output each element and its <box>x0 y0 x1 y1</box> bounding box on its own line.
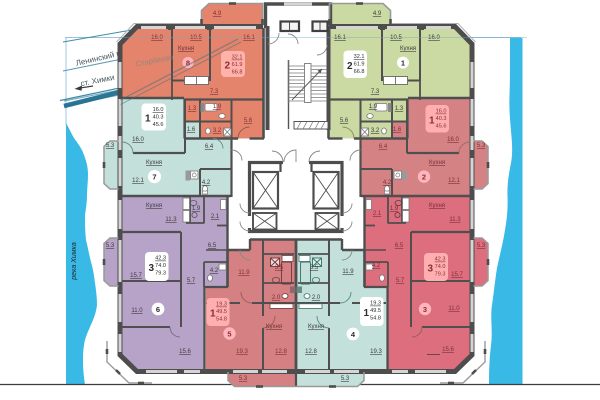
svg-text:5.3: 5.3 <box>341 376 350 382</box>
svg-text:5.7: 5.7 <box>187 278 196 284</box>
svg-text:16.0: 16.0 <box>153 107 164 113</box>
svg-text:16.0: 16.0 <box>447 137 459 143</box>
svg-text:1: 1 <box>429 115 435 126</box>
svg-text:49.5: 49.5 <box>370 308 381 314</box>
svg-text:Кухня: Кухня <box>266 324 282 330</box>
svg-text:4.2: 4.2 <box>372 263 381 269</box>
svg-text:42.3: 42.3 <box>155 256 166 262</box>
svg-text:11.0: 11.0 <box>448 306 460 312</box>
svg-text:12.1: 12.1 <box>448 178 460 184</box>
svg-text:7: 7 <box>152 173 156 182</box>
svg-text:5.3: 5.3 <box>106 143 115 149</box>
svg-text:6.5: 6.5 <box>395 243 404 249</box>
svg-text:19.3: 19.3 <box>370 301 381 307</box>
svg-text:1.9: 1.9 <box>390 206 399 212</box>
svg-text:1: 1 <box>210 309 216 320</box>
svg-text:3.2: 3.2 <box>213 128 222 134</box>
svg-text:7.3: 7.3 <box>371 89 380 95</box>
svg-text:2.1: 2.1 <box>211 214 220 220</box>
svg-text:2.0: 2.0 <box>272 295 281 301</box>
svg-text:1.9: 1.9 <box>369 104 378 110</box>
svg-text:42.3: 42.3 <box>435 257 446 263</box>
svg-text:61.9: 61.9 <box>354 62 365 68</box>
svg-text:1: 1 <box>401 58 405 67</box>
svg-text:15.7: 15.7 <box>451 272 463 278</box>
svg-text:2: 2 <box>225 61 231 72</box>
svg-text:16.0: 16.0 <box>132 137 144 143</box>
svg-text:61.9: 61.9 <box>232 62 243 68</box>
svg-text:Кухня: Кухня <box>146 203 162 209</box>
svg-text:4.2: 4.2 <box>383 180 392 186</box>
svg-text:74.0: 74.0 <box>435 264 446 270</box>
svg-text:45.6: 45.6 <box>436 123 447 129</box>
svg-text:49.5: 49.5 <box>216 309 227 315</box>
svg-text:12.1: 12.1 <box>132 178 144 184</box>
svg-text:40.3: 40.3 <box>436 116 447 122</box>
svg-text:16.0: 16.0 <box>436 109 447 115</box>
svg-text:5.6: 5.6 <box>244 118 253 124</box>
svg-text:6: 6 <box>156 305 160 314</box>
svg-text:66.8: 66.8 <box>232 69 243 75</box>
svg-text:19.3: 19.3 <box>236 349 248 355</box>
svg-text:12.8: 12.8 <box>275 349 287 355</box>
svg-text:10.5: 10.5 <box>390 35 402 41</box>
svg-text:5.3: 5.3 <box>477 143 486 149</box>
svg-text:16.1: 16.1 <box>243 35 255 41</box>
svg-text:11.0: 11.0 <box>131 308 143 314</box>
svg-text:5.7: 5.7 <box>396 278 405 284</box>
svg-text:1.3: 1.3 <box>188 106 197 112</box>
svg-text:1.6: 1.6 <box>393 127 402 133</box>
svg-text:4.9: 4.9 <box>213 11 222 17</box>
svg-text:5.3: 5.3 <box>106 243 115 249</box>
svg-text:6.5: 6.5 <box>208 243 217 249</box>
svg-text:15.7: 15.7 <box>130 273 142 279</box>
svg-text:1.9: 1.9 <box>192 206 201 212</box>
svg-text:54.8: 54.8 <box>216 316 227 322</box>
svg-text:10.5: 10.5 <box>190 35 202 41</box>
svg-text:Кухня: Кухня <box>146 160 162 166</box>
svg-text:12.8: 12.8 <box>305 349 317 355</box>
svg-text:1.6: 1.6 <box>187 127 196 133</box>
svg-text:3: 3 <box>149 263 155 274</box>
svg-text:19.3: 19.3 <box>370 349 382 355</box>
svg-text:2: 2 <box>347 61 353 72</box>
svg-text:Кухня: Кухня <box>400 46 416 52</box>
svg-text:40.3: 40.3 <box>153 115 164 121</box>
svg-text:32.1: 32.1 <box>232 55 243 61</box>
svg-text:1: 1 <box>364 308 370 319</box>
svg-text:3.5: 3.5 <box>310 265 319 271</box>
svg-text:река Химка: река Химка <box>71 242 78 281</box>
svg-text:79.3: 79.3 <box>435 271 446 277</box>
svg-text:74.0: 74.0 <box>155 263 166 269</box>
svg-text:79.3: 79.3 <box>155 270 166 276</box>
svg-text:3.2: 3.2 <box>371 128 380 134</box>
svg-text:5: 5 <box>227 329 231 338</box>
svg-text:4.2: 4.2 <box>210 268 219 274</box>
svg-text:3: 3 <box>423 305 427 314</box>
svg-text:5.6: 5.6 <box>340 118 349 124</box>
svg-text:5.3: 5.3 <box>239 376 248 382</box>
svg-text:3: 3 <box>428 264 434 275</box>
svg-text:15.6: 15.6 <box>442 347 454 353</box>
svg-text:Кухня: Кухня <box>429 160 445 166</box>
svg-text:16.0: 16.0 <box>151 35 163 41</box>
svg-text:66.8: 66.8 <box>354 69 365 75</box>
svg-text:15.6: 15.6 <box>179 349 191 355</box>
svg-text:11.3: 11.3 <box>449 217 461 223</box>
svg-text:Кухня: Кухня <box>178 46 194 52</box>
svg-text:2.1: 2.1 <box>373 211 382 217</box>
svg-text:Кухня: Кухня <box>429 203 445 209</box>
svg-text:1.3: 1.3 <box>395 106 404 112</box>
svg-text:16.0: 16.0 <box>428 35 440 41</box>
svg-text:3.5: 3.5 <box>275 265 284 271</box>
svg-text:4.9: 4.9 <box>373 11 382 17</box>
svg-text:5.3: 5.3 <box>477 243 486 249</box>
svg-text:2: 2 <box>422 173 426 182</box>
svg-text:11.3: 11.3 <box>165 217 177 223</box>
svg-text:6.4: 6.4 <box>379 144 388 150</box>
svg-text:2.0: 2.0 <box>312 295 321 301</box>
svg-text:45.6: 45.6 <box>153 122 164 128</box>
svg-text:11.9: 11.9 <box>238 270 250 276</box>
svg-text:1: 1 <box>145 114 151 125</box>
svg-text:16.1: 16.1 <box>334 35 346 41</box>
svg-text:1.9: 1.9 <box>213 104 222 110</box>
svg-text:54.8: 54.8 <box>370 315 381 321</box>
svg-text:6.4: 6.4 <box>205 144 214 150</box>
svg-text:11.9: 11.9 <box>342 269 354 275</box>
svg-text:19.3: 19.3 <box>216 302 227 308</box>
svg-text:32.1: 32.1 <box>354 54 365 60</box>
svg-text:7.3: 7.3 <box>210 89 219 95</box>
svg-text:4.2: 4.2 <box>202 180 211 186</box>
svg-text:Кухня: Кухня <box>308 324 324 330</box>
